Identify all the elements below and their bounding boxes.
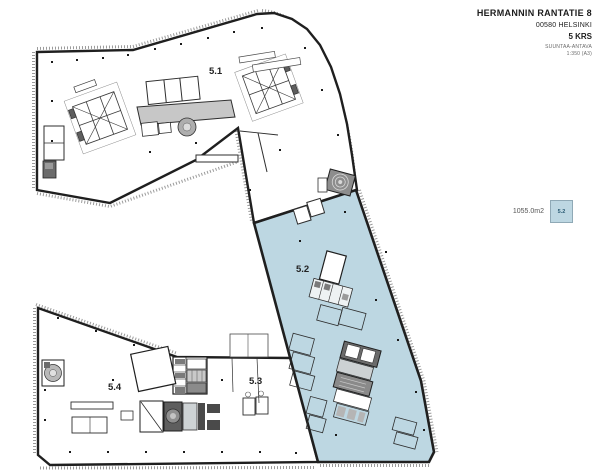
project-address: HERMANNIN RANTATIE 8 — [477, 9, 592, 18]
project-city: 00580 HELSINKI — [477, 22, 592, 29]
meeting-rooms-center — [146, 76, 200, 104]
label-section-5-3: 5.3 — [249, 376, 262, 387]
lower-core — [173, 357, 207, 394]
label-section-5-4: 5.4 — [108, 382, 122, 393]
long-table — [71, 402, 113, 409]
scale-text: 1:350 (A3) — [477, 52, 592, 57]
area-legend: 1055.0m2 5.2 — [513, 200, 573, 223]
label-section-5-1: 5.1 — [209, 66, 223, 77]
unit-swatch[interactable]: 5.2 — [550, 200, 573, 223]
unit-swatch-label: 5.2 — [558, 209, 566, 215]
floor-plan-drawing: 5.1 5.2 5.3 5.4 — [0, 0, 600, 471]
balcony-ledge — [196, 155, 238, 162]
table-54 — [72, 417, 107, 433]
label-section-5-2: 5.2 — [296, 264, 309, 275]
terrace-strip — [230, 334, 268, 357]
title-block: HERMANNIN RANTATIE 8 00580 HELSINKI 5 KR… — [477, 9, 592, 57]
area-value: 1055.0m2 — [513, 208, 544, 215]
floor-number: 5 KRS — [477, 33, 592, 41]
left-spiral-stair — [42, 360, 64, 386]
tilted-room — [131, 346, 176, 391]
disclaimer-text: SUUNTAA-ANTAVA — [477, 45, 592, 50]
